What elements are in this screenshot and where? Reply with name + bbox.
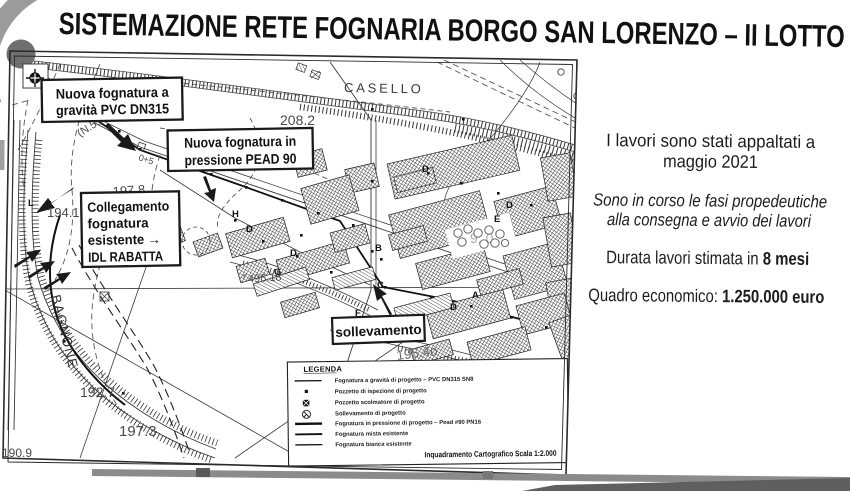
- svg-text:E: E: [494, 214, 500, 225]
- svg-text:Quadro economico: 1.250.000 eu: Quadro economico: 1.250.000 euro: [588, 285, 824, 307]
- svg-text:SISTEMAZIONE RETE FOGNARIA BOR: SISTEMAZIONE RETE FOGNARIA BORGO SAN LOR…: [59, 6, 845, 54]
- svg-text:D: D: [506, 200, 513, 211]
- svg-text:D: D: [422, 164, 429, 175]
- svg-text:LEGENDA: LEGENDA: [303, 364, 342, 373]
- svg-text:CASELLO: CASELLO: [344, 80, 424, 96]
- svg-text:Pozzetto scolmatore di progett: Pozzetto scolmatore di progetto: [335, 399, 425, 406]
- svg-text:I lavori sono stati appaltati: I lavori sono stati appaltati a: [606, 130, 816, 152]
- svg-text:Sono in corso le fasi propedeu: Sono in corso le fasi propedeutiche: [593, 189, 827, 211]
- svg-text:D: D: [450, 302, 457, 313]
- svg-text:192.7: 192.7: [80, 384, 115, 400]
- svg-text:pressione PEAD 90: pressione PEAD 90: [184, 150, 296, 168]
- svg-text:Pozzetto di ispezione di proge: Pozzetto di ispezione di progetto: [335, 388, 427, 395]
- svg-text:gravità PVC DN315: gravità PVC DN315: [56, 100, 169, 118]
- svg-text:194.1: 194.1: [47, 205, 80, 220]
- svg-text:esistente →: esistente →: [88, 232, 161, 248]
- svg-text:L: L: [28, 198, 34, 209]
- svg-text:B: B: [375, 243, 382, 254]
- svg-text:Inquadramento Cartografico Sca: Inquadramento Cartografico Scala 1:2.000: [424, 449, 557, 460]
- svg-text:IDL RABATTA: IDL RABATTA: [88, 249, 163, 265]
- svg-text:Nuova fognatura in: Nuova fognatura in: [184, 133, 296, 151]
- svg-text:197.3: 197.3: [119, 423, 157, 440]
- svg-text:sollevamento: sollevamento: [335, 322, 422, 340]
- svg-text:D: D: [290, 248, 297, 259]
- svg-text:Fognatura bianca esistente: Fognatura bianca esistente: [335, 442, 412, 449]
- svg-text:maggio 2021: maggio 2021: [663, 151, 758, 172]
- svg-text:D: D: [246, 224, 253, 235]
- svg-text:A: A: [472, 290, 479, 301]
- svg-text:Fognatura mista esistente: Fognatura mista esistente: [335, 431, 409, 438]
- svg-text:208.2: 208.2: [280, 112, 315, 128]
- svg-text:alla consegna e avvio dei lavo: alla consegna e avvio dei lavori: [607, 209, 812, 231]
- svg-text:Nuova fognatura a: Nuova fognatura a: [56, 84, 169, 102]
- svg-text:Collegamento: Collegamento: [87, 198, 169, 214]
- svg-text:Sollevamento di progetto: Sollevamento di progetto: [335, 411, 406, 418]
- svg-text:Durata lavori stimata in 8 mes: Durata lavori stimata in 8 mesi: [606, 247, 809, 269]
- svg-text:H: H: [232, 209, 239, 220]
- svg-text:fognatura: fognatura: [87, 215, 149, 231]
